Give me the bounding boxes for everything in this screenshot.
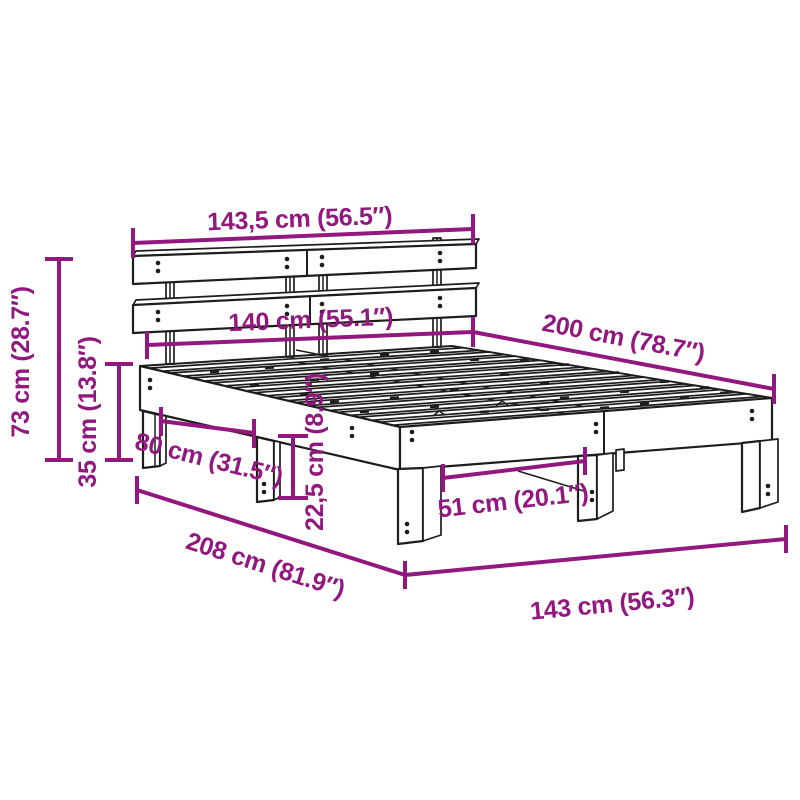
dim-headboard-height: 73 cm (28.7″) xyxy=(7,259,73,460)
dim-total-width-label: 143 cm (56.3″) xyxy=(529,582,696,625)
foot-right-leg xyxy=(742,441,760,512)
center-rail-foot xyxy=(616,449,624,471)
dim-under-bed-clearance-label: 22,5 cm (8.9″) xyxy=(301,373,329,531)
foot-middle-leg-side xyxy=(597,453,613,519)
dim-frame-height-label: 35 cm (13.8″) xyxy=(74,336,102,487)
diagram-canvas: 143,5 cm (56.5″) 140 cm (55.1″) 200 cm (… xyxy=(0,0,800,800)
dim-slat-area-width-label: 140 cm (55.1″) xyxy=(228,303,394,338)
dim-foot-leg-spacing-label: 51 cm (20.1″) xyxy=(436,479,589,524)
dim-total-length-label: 208 cm (81.9″) xyxy=(183,527,349,604)
dim-total-width: 143 cm (56.3″) xyxy=(405,525,786,626)
foot-left-leg xyxy=(398,468,423,544)
dim-headboard-height-label: 73 cm (28.7″) xyxy=(7,286,35,437)
foot-right-leg-side xyxy=(760,439,778,508)
dimension-line xyxy=(45,259,73,460)
dimension-line xyxy=(405,525,786,575)
dimension-line xyxy=(105,364,133,460)
bed-dimension-diagram: 143,5 cm (56.5″) 140 cm (55.1″) 200 cm (… xyxy=(0,0,800,800)
dim-headboard-width-label: 143,5 cm (56.5″) xyxy=(207,202,393,236)
dim-frame-height: 35 cm (13.8″) xyxy=(74,336,133,487)
